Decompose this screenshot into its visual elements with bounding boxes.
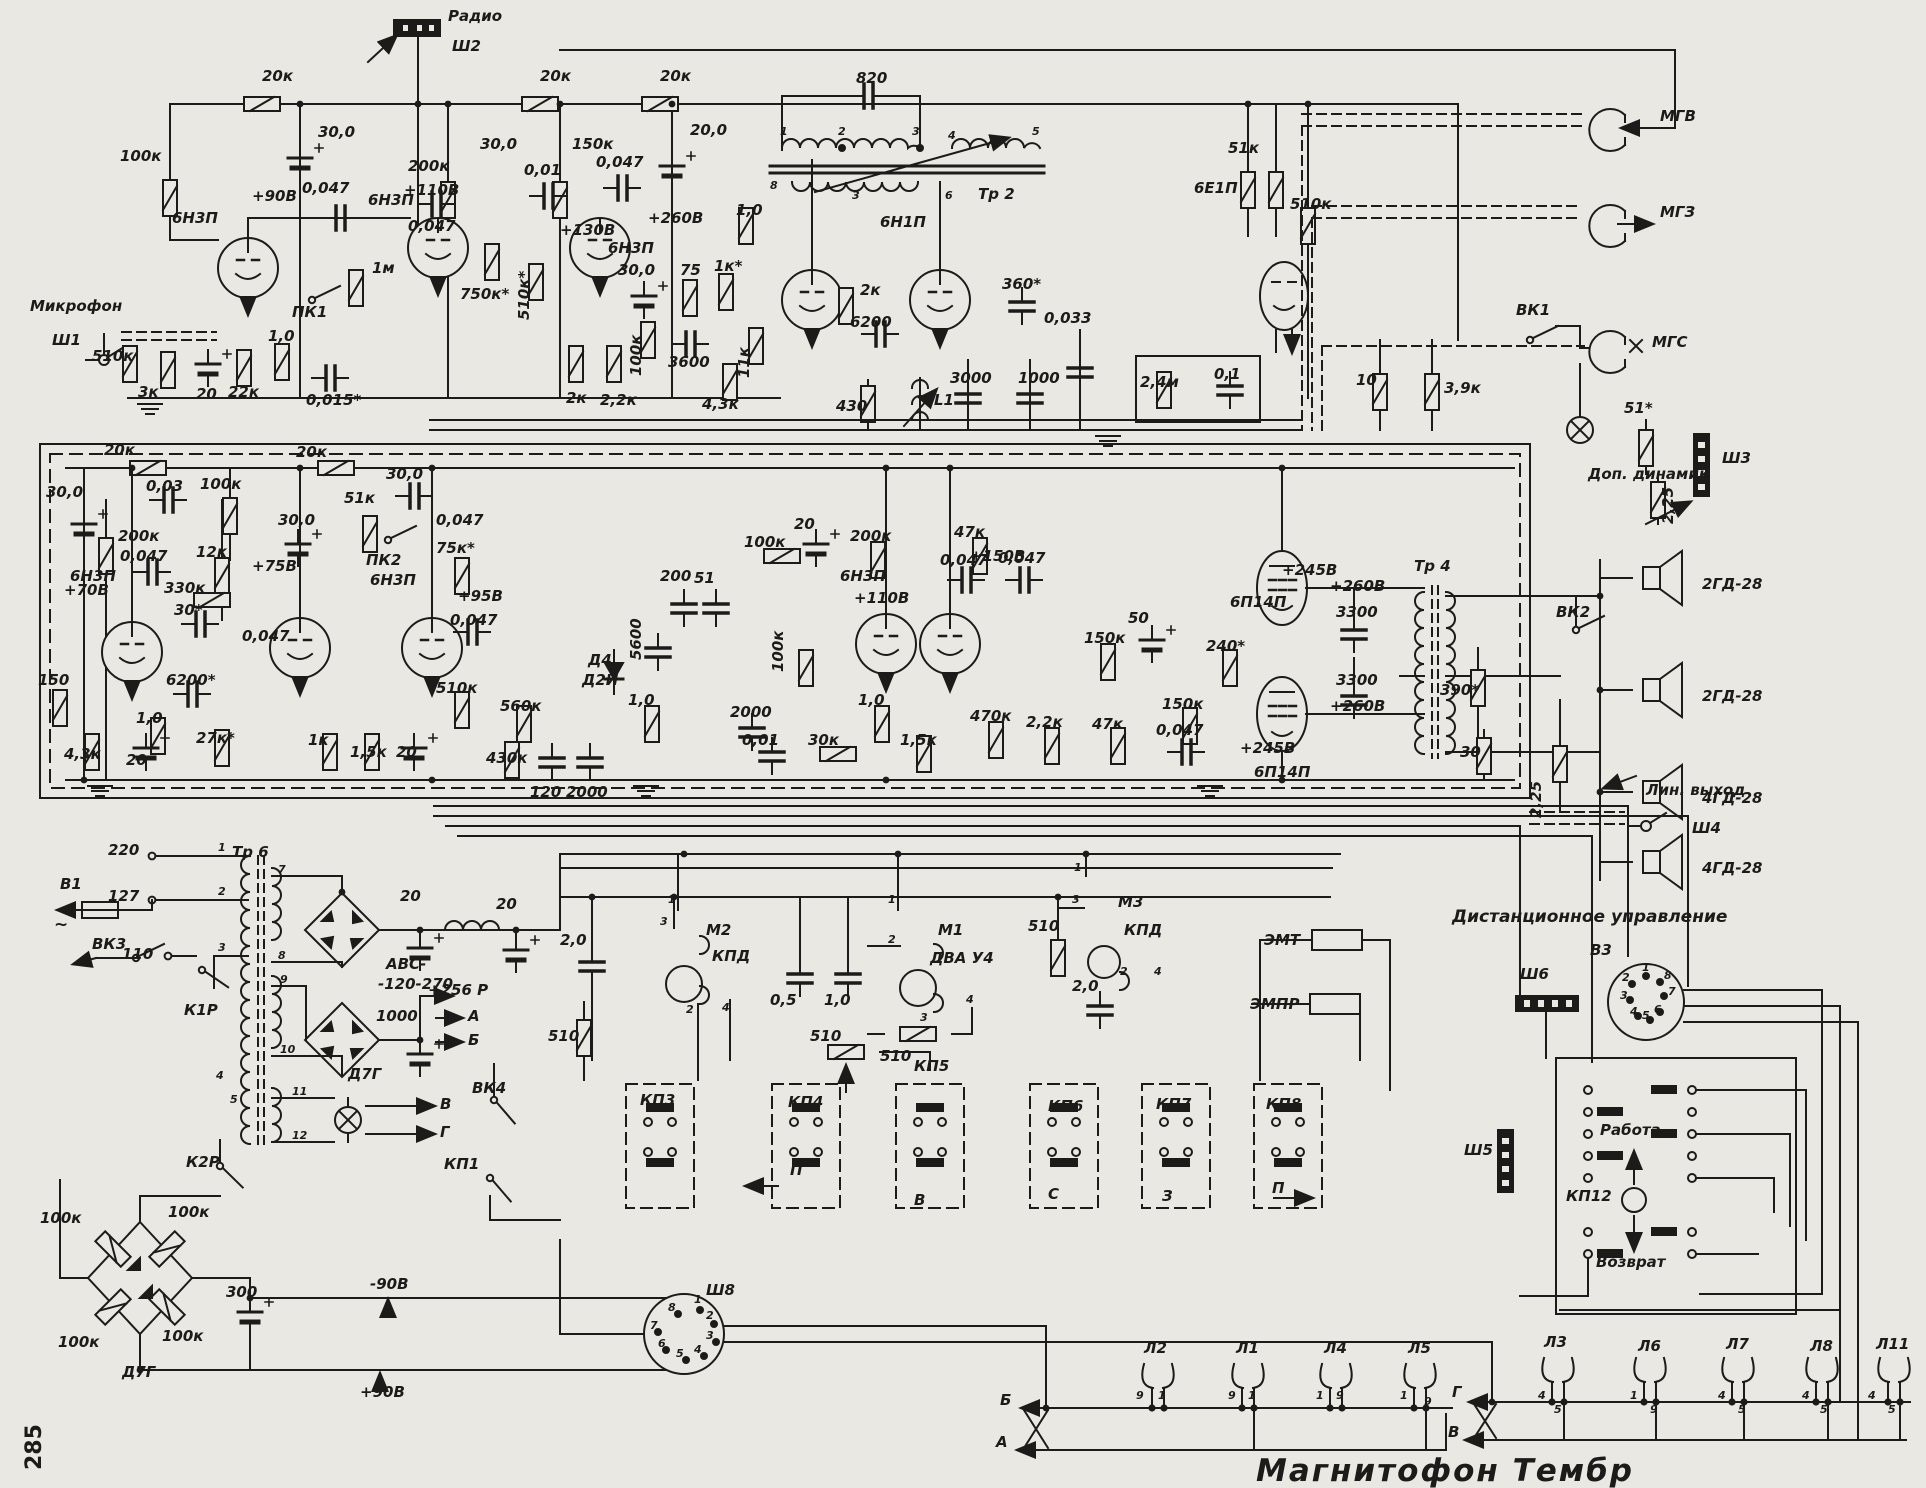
connector-sh6-label: Ш6 bbox=[1520, 965, 1549, 983]
connector-sh8-label: Ш8 bbox=[706, 1281, 735, 1299]
value-label: 100к bbox=[40, 1209, 82, 1227]
pin-label: 4 bbox=[966, 993, 974, 1006]
pin-label: 4 bbox=[1718, 1389, 1726, 1402]
diode-d4-label: Д4 bbox=[588, 651, 612, 669]
pin-label: 7 bbox=[1668, 985, 1676, 998]
mode-letter-label: П bbox=[790, 1161, 803, 1179]
pin-label: 8 bbox=[278, 949, 286, 962]
pin-label: 9 bbox=[280, 973, 288, 986]
pin-label: 3 bbox=[1620, 989, 1628, 1002]
value-label: 390* bbox=[1440, 681, 1479, 699]
rectifier-abc-label: АВС- bbox=[386, 955, 426, 973]
feed-a-label: А bbox=[468, 1007, 480, 1025]
motor-m1-label: М1 bbox=[938, 921, 963, 939]
page-title: Магнитофон Тембр bbox=[1256, 1453, 1634, 1488]
connector-sh2-label: Ш2 bbox=[452, 37, 481, 55]
pin-label: 8 bbox=[668, 1301, 676, 1314]
mode-letter-label: П bbox=[1272, 1179, 1285, 1197]
pin-label: 10 bbox=[280, 1043, 295, 1056]
pin-label: 1 bbox=[1248, 1389, 1256, 1402]
pin-label: 3 bbox=[852, 189, 860, 202]
value-label: 0,047 bbox=[120, 547, 167, 565]
value-label: 30* bbox=[174, 601, 203, 619]
value-label: 150к bbox=[1162, 695, 1204, 713]
pin-label: 6 bbox=[945, 189, 953, 202]
connector-sh1-label: Ш1 bbox=[52, 331, 81, 349]
switch-vk1-label: ВК1 bbox=[1516, 301, 1550, 319]
value-label: 3,9к bbox=[1444, 379, 1481, 397]
value-label: 20 bbox=[126, 751, 147, 769]
pin-label: 8 bbox=[770, 179, 778, 192]
pin-label: 5 bbox=[1738, 1403, 1746, 1416]
value-label: 30к bbox=[808, 731, 839, 749]
value-label: 51 bbox=[694, 569, 715, 587]
relay-k2r-label: К2Р bbox=[186, 1153, 220, 1171]
value-label: 6200* bbox=[166, 671, 216, 689]
value-label: 30,0 bbox=[46, 483, 83, 501]
pin-label: 6 bbox=[658, 1337, 666, 1350]
mains-tap-label: 220 bbox=[108, 841, 139, 859]
voltage-label: +95В bbox=[458, 587, 503, 605]
pin-label: 1 bbox=[218, 841, 226, 854]
value-label: 240* bbox=[1206, 637, 1245, 655]
value-label: 27к* bbox=[196, 729, 235, 747]
speaker-label: 4ГД-28 bbox=[1702, 859, 1762, 877]
value-label: 360* bbox=[1002, 275, 1041, 293]
tube-6p14p-label: 6П14П bbox=[1254, 763, 1310, 781]
ac-symbol: ~ bbox=[54, 915, 68, 935]
value-label: 22к bbox=[228, 383, 259, 401]
value-label: 200к bbox=[408, 157, 450, 175]
pin-label: 3 bbox=[660, 915, 668, 928]
value-label: 2,4м bbox=[1140, 373, 1179, 391]
lamp-label: Л4 bbox=[1324, 1339, 1347, 1357]
value-label: 430 bbox=[836, 397, 867, 415]
pin-label: 4 bbox=[948, 129, 956, 142]
value-label: 30,0 bbox=[278, 511, 315, 529]
labels-layer: 20к 20к 20к 100к 30,0 +90В 0,047 1м ПК1 … bbox=[0, 0, 1926, 1488]
value-label: 30,0 bbox=[318, 123, 355, 141]
switch-vk4-label: ВК4 bbox=[472, 1079, 506, 1097]
value-label: 0,015* bbox=[306, 391, 361, 409]
line-out-label: Лин. выход bbox=[1646, 781, 1745, 799]
value-label: 20 bbox=[400, 887, 421, 905]
value-label: 0,01 bbox=[742, 731, 779, 749]
tube-6n3p-label: 6Н3П bbox=[70, 567, 116, 585]
value-label: 0,047 bbox=[242, 627, 289, 645]
mains-tap-label: 110 bbox=[122, 945, 153, 963]
value-label: 51к bbox=[1228, 139, 1259, 157]
pin-label: 4 bbox=[1630, 1005, 1638, 1018]
value-label: 1к bbox=[308, 731, 329, 749]
value-label: 4,3к bbox=[702, 395, 739, 413]
value-label: 0,047 bbox=[408, 217, 455, 235]
lamp-label: Л5 bbox=[1408, 1339, 1431, 1357]
value-label: 3000 bbox=[950, 369, 992, 387]
mode-letter-label: С bbox=[1048, 1185, 1059, 1203]
value-label: 430к bbox=[486, 749, 528, 767]
switch-kp5-label: КП5 bbox=[914, 1057, 949, 1075]
switch-pk1-label: ПК1 bbox=[292, 303, 327, 321]
value-label: 20к bbox=[660, 67, 691, 85]
fuse-v1-label: В1 bbox=[60, 875, 82, 893]
rectifier-d7g-label: Д7Г bbox=[348, 1065, 381, 1083]
transformer-tr6-label: Тр 6 bbox=[232, 843, 269, 861]
value-label: 470к bbox=[970, 707, 1012, 725]
value-label: 0,047 bbox=[436, 511, 483, 529]
value-label: 2,0 bbox=[560, 931, 587, 949]
motor-type-label: КПД bbox=[1124, 921, 1162, 939]
value-label: 10 bbox=[1356, 371, 1377, 389]
tube-6n1p-label: 6Н1П bbox=[880, 213, 926, 231]
value-label: 2000 bbox=[566, 783, 608, 801]
value-label: 2,2к bbox=[600, 391, 637, 409]
value-label: 47к bbox=[954, 523, 985, 541]
radio-input-label: Радио bbox=[448, 7, 502, 25]
value-label: 20 bbox=[794, 515, 815, 533]
microphone-label: Микрофон bbox=[30, 297, 122, 315]
value-label: 0,047 bbox=[302, 179, 349, 197]
value-label: 0,03 bbox=[146, 477, 183, 495]
lamp-label: Л3 bbox=[1544, 1333, 1567, 1351]
value-label: 20к bbox=[104, 441, 135, 459]
lamp-label: Л2 bbox=[1144, 1339, 1167, 1357]
pin-label: 4 bbox=[1538, 1389, 1546, 1402]
value-label: 4,3к bbox=[64, 745, 101, 763]
value-label: 20 bbox=[396, 743, 417, 761]
value-label: 120 bbox=[530, 783, 561, 801]
head-mgv-label: МГВ bbox=[1660, 107, 1696, 125]
mains-tap-label: 127 bbox=[108, 887, 139, 905]
pin-label: 1 bbox=[1400, 1389, 1408, 1402]
pin-label: 9 bbox=[1136, 1389, 1144, 1402]
pin-label: 1 bbox=[668, 893, 676, 906]
feed-v-label: В bbox=[1448, 1423, 1459, 1441]
value-label: 3к bbox=[138, 383, 159, 401]
voltage-label: +245В bbox=[1240, 739, 1295, 757]
value-label: 510 bbox=[548, 1027, 579, 1045]
tube-6n3p-label: 6Н3П bbox=[608, 239, 654, 257]
connector-sh5-label: Ш5 bbox=[1464, 1141, 1493, 1159]
pin-label: 4 bbox=[1154, 965, 1162, 978]
connector-sh3-label: Ш3 bbox=[1722, 449, 1751, 467]
value-label: 1,0 bbox=[858, 691, 885, 709]
diode-type-label: Д2И bbox=[582, 671, 618, 689]
pin-label: 5 bbox=[1032, 125, 1040, 138]
value-label: 47к bbox=[1092, 715, 1123, 733]
switch-kp8-label: КП8 bbox=[1266, 1095, 1301, 1113]
value-label: 510 bbox=[810, 1027, 841, 1045]
value-label: 100к bbox=[120, 147, 162, 165]
feed-g-label: Г bbox=[440, 1123, 450, 1141]
pin-label: 6 bbox=[1654, 1003, 1662, 1016]
value-label: 75к* bbox=[436, 539, 475, 557]
tube-6e1p-label: 6Е1П bbox=[1194, 179, 1238, 197]
feed-v-label: В bbox=[440, 1095, 451, 1113]
value-label: 30,0 bbox=[386, 465, 423, 483]
value-label: 1,0 bbox=[268, 327, 295, 345]
value-label: 20 bbox=[196, 385, 217, 403]
tube-6n3p-label: 6Н3П bbox=[840, 567, 886, 585]
value-label: 0,047 bbox=[998, 549, 1045, 567]
value-label: 75 bbox=[680, 261, 701, 279]
value-label: 200к bbox=[118, 527, 160, 545]
voltage-label: -90В bbox=[370, 1275, 409, 1293]
value-label: 30,0 bbox=[480, 135, 517, 153]
head-mgs-label: МГС bbox=[1652, 333, 1688, 351]
voltage-label: +260В bbox=[1330, 577, 1385, 595]
pin-label: 3 bbox=[706, 1329, 714, 1342]
value-label: 50 bbox=[1128, 609, 1149, 627]
schematic-page: 20к 20к 20к 100к 30,0 +90В 0,047 1м ПК1 … bbox=[0, 0, 1926, 1488]
lamp-label: Л6 bbox=[1638, 1337, 1661, 1355]
value-label: 1000 bbox=[376, 1007, 418, 1025]
pin-label: 7 bbox=[278, 863, 286, 876]
pin-label: 2 bbox=[686, 1003, 694, 1016]
voltage-label: +90В bbox=[252, 187, 297, 205]
value-label: 20к bbox=[540, 67, 571, 85]
voltage-label: +130В bbox=[560, 221, 615, 239]
value-label: 6200 bbox=[850, 313, 892, 331]
lamp-label: Л8 bbox=[1810, 1337, 1833, 1355]
tube-6n3p-label: 6Н3П bbox=[370, 571, 416, 589]
voltage-label: +90В bbox=[360, 1383, 405, 1401]
value-label: 150к bbox=[572, 135, 614, 153]
speaker-label: 2ГД-28 bbox=[1702, 687, 1762, 705]
pin-label: 4 bbox=[1868, 1389, 1876, 1402]
value-label: 1,5к bbox=[350, 743, 387, 761]
value-label: 100к bbox=[162, 1327, 204, 1345]
value-label: 2,2к bbox=[1026, 713, 1063, 731]
value-label: 2к bbox=[860, 281, 881, 299]
switch-kp1-label: КП1 bbox=[444, 1155, 479, 1173]
value-label: 2,0 bbox=[1072, 977, 1099, 995]
remote-control-heading: Дистанционное управление bbox=[1452, 907, 1727, 927]
transformer-tr4-label: Тр 4 bbox=[1414, 557, 1451, 575]
mode-work-label: Работа bbox=[1600, 1121, 1661, 1139]
value-label: 3600 bbox=[668, 353, 710, 371]
pin-label: 11 bbox=[292, 1085, 307, 1098]
head-mgz-label: МГЗ bbox=[1660, 203, 1695, 221]
voltage-label: +260В bbox=[1330, 697, 1385, 715]
pin-label: 2 bbox=[706, 1309, 714, 1322]
lamp-label: Л11 bbox=[1876, 1335, 1909, 1353]
value-label: 300 bbox=[226, 1283, 257, 1301]
pin-label: 1 bbox=[780, 125, 788, 138]
pin-label: 9 bbox=[1650, 1403, 1658, 1416]
lamp-label: Л7 bbox=[1726, 1335, 1749, 1353]
value-label: 1,5к bbox=[900, 731, 937, 749]
value-label: 3300 bbox=[1336, 603, 1378, 621]
value-label: 2,25 bbox=[1659, 487, 1677, 524]
value-label: 200 bbox=[660, 567, 691, 585]
mode-letter-label: З bbox=[1162, 1187, 1173, 1205]
switch-kp3-label: КП3 bbox=[640, 1091, 675, 1109]
value-label: 1,0 bbox=[136, 709, 163, 727]
value-label: 20,0 bbox=[690, 121, 727, 139]
mode-letter-label: В bbox=[914, 1191, 925, 1209]
electromagnet-emt-label: ЭМТ bbox=[1264, 931, 1300, 949]
connector-sh4-label: Ш4 bbox=[1692, 819, 1721, 837]
feed-b-label: Б bbox=[468, 1031, 479, 1049]
pin-label: 4 bbox=[1802, 1389, 1810, 1402]
pin-label: 5 bbox=[1642, 1009, 1650, 1022]
switch-kp4-label: КП4 bbox=[788, 1093, 823, 1111]
value-label: 150 bbox=[38, 671, 69, 689]
value-label: 750к* bbox=[460, 285, 509, 303]
motor-m3-label: М3 bbox=[1118, 893, 1143, 911]
tube-6n3p-label: 6Н3П bbox=[368, 191, 414, 209]
pin-label: 3 bbox=[1072, 893, 1080, 906]
value-label: 150к bbox=[1084, 629, 1126, 647]
pin-label: 9 bbox=[1228, 1389, 1236, 1402]
feed-b-label: Б bbox=[1000, 1391, 1011, 1409]
value-label: 30,0 bbox=[618, 261, 655, 279]
value-label: 0,01 bbox=[524, 161, 561, 179]
page-number: 285 bbox=[22, 1424, 47, 1470]
tube-6n3p-label: 6Н3П bbox=[172, 209, 218, 227]
pin-label: 2 bbox=[888, 933, 896, 946]
value-label: 560к bbox=[500, 697, 542, 715]
value-label: 1,0 bbox=[824, 991, 851, 1009]
pin-label: 4 bbox=[216, 1069, 224, 1082]
pin-label: 1 bbox=[694, 1293, 702, 1306]
value-label: 11к bbox=[735, 347, 753, 378]
tube-6p14p-label: 6П14П bbox=[1230, 593, 1286, 611]
pin-label: 9 bbox=[1336, 1389, 1344, 1402]
pin-label: 3 bbox=[920, 1011, 928, 1024]
switch-vk3-label: ВК3 bbox=[92, 935, 126, 953]
pin-label: 5 bbox=[230, 1093, 238, 1106]
transformer-tr2-label: Тр 2 bbox=[978, 185, 1015, 203]
value-label: 2,25 bbox=[1527, 781, 1545, 818]
voltage-label: +75В bbox=[252, 557, 297, 575]
value-label: 510к* bbox=[515, 271, 533, 320]
pin-label: 5 bbox=[1554, 1403, 1562, 1416]
value-label: 1,0 bbox=[736, 201, 763, 219]
pin-label: 4 bbox=[722, 1001, 730, 1014]
value-label: 51к bbox=[344, 489, 375, 507]
pin-label: 8 bbox=[1664, 969, 1672, 982]
value-label: 51* bbox=[1624, 399, 1653, 417]
value-label: 2000 bbox=[730, 703, 772, 721]
value-label: 510 bbox=[1028, 917, 1059, 935]
value-label: 0,033 bbox=[1044, 309, 1091, 327]
pin-label: 3 bbox=[218, 941, 226, 954]
motor-type-label: КПД bbox=[712, 947, 750, 965]
value-label: 510к bbox=[92, 347, 134, 365]
value-label: 12к bbox=[196, 543, 227, 561]
pin-label: 9 bbox=[1424, 1395, 1432, 1408]
pin-label: 2 bbox=[1622, 971, 1630, 984]
pin-label: 2 bbox=[1120, 965, 1128, 978]
value-label: 820 bbox=[856, 69, 887, 87]
lamp-label: Л1 bbox=[1236, 1339, 1259, 1357]
pin-label: 5 bbox=[1888, 1403, 1896, 1416]
pin-label: 1 bbox=[1158, 1389, 1166, 1402]
value-label: 100к bbox=[627, 335, 645, 377]
pin-label: 1 bbox=[1316, 1389, 1324, 1402]
value-label: 1к* bbox=[714, 257, 742, 275]
feed-a-label: А bbox=[996, 1433, 1008, 1451]
value-label: 330к bbox=[164, 579, 206, 597]
relay-k1r-label: К1Р bbox=[184, 1001, 218, 1019]
value-label: 0,047 bbox=[596, 153, 643, 171]
feed-g-label: Г bbox=[1452, 1383, 1462, 1401]
mode-return-label: Возврат bbox=[1596, 1253, 1666, 1271]
value-label: 200к bbox=[850, 527, 892, 545]
value-label: 100к bbox=[58, 1333, 100, 1351]
value-label: 510к bbox=[436, 679, 478, 697]
value-label: 2к bbox=[566, 389, 587, 407]
switch-kp6-label: КП6 bbox=[1048, 1097, 1083, 1115]
value-label: 0,5 bbox=[770, 991, 797, 1009]
voltage-label: +256 Р bbox=[428, 981, 488, 999]
motor-m2-label: М2 bbox=[706, 921, 731, 939]
value-label: 1м bbox=[372, 259, 395, 277]
value-label: 0,047 bbox=[450, 611, 497, 629]
motor-type-label: ДВА У4 bbox=[930, 949, 994, 967]
pin-label: 5 bbox=[676, 1347, 684, 1360]
voltage-label: +110В bbox=[854, 589, 909, 607]
pin-label: 1 bbox=[1074, 861, 1082, 874]
speaker-label: 2ГД-28 bbox=[1702, 575, 1762, 593]
pin-label: 12 bbox=[292, 1129, 307, 1142]
pin-label: 1 bbox=[1642, 961, 1650, 974]
value-label: 3300 bbox=[1336, 671, 1378, 689]
value-label: 5600 bbox=[627, 618, 645, 660]
value-label: 100к bbox=[200, 475, 242, 493]
switch-kp7-label: КП7 bbox=[1156, 1095, 1191, 1113]
rectifier-d7g-label: Д7Г bbox=[122, 1363, 155, 1381]
electromagnet-empr-label: ЭМПР bbox=[1250, 995, 1299, 1013]
value-label: 1,0 bbox=[628, 691, 655, 709]
pin-label: 7 bbox=[650, 1319, 658, 1332]
value-label: 30 bbox=[1460, 743, 1481, 761]
pin-label: 5 bbox=[1820, 1403, 1828, 1416]
value-label: 100к bbox=[744, 533, 786, 551]
switch-pk2-label: ПК2 bbox=[366, 551, 401, 569]
pin-label: 1 bbox=[888, 893, 896, 906]
value-label: 20 bbox=[496, 895, 517, 913]
value-label: 20к bbox=[262, 67, 293, 85]
value-label: 0,047 bbox=[1156, 721, 1203, 739]
pin-label: 1 bbox=[1630, 1389, 1638, 1402]
pin-label: 4 bbox=[694, 1343, 702, 1356]
value-label: 100к bbox=[168, 1203, 210, 1221]
value-label: 510 bbox=[880, 1047, 911, 1065]
pin-label: 2 bbox=[218, 885, 226, 898]
value-label: 100к bbox=[769, 631, 787, 673]
connector-v3-label: В3 bbox=[1590, 941, 1612, 959]
switch-kp12-label: КП12 bbox=[1566, 1187, 1612, 1205]
switch-vk2-label: ВК2 bbox=[1556, 603, 1590, 621]
voltage-label: +260В bbox=[648, 209, 703, 227]
pin-label: 3 bbox=[912, 125, 920, 138]
value-label: 510к bbox=[1290, 195, 1332, 213]
pin-label: 2 bbox=[838, 125, 846, 138]
value-label: 20к bbox=[296, 443, 327, 461]
value-label: 0,1 bbox=[1214, 365, 1241, 383]
aux-speaker-label: Доп. динамик bbox=[1588, 465, 1709, 483]
value-label: L1 bbox=[934, 391, 954, 409]
value-label: 1000 bbox=[1018, 369, 1060, 387]
